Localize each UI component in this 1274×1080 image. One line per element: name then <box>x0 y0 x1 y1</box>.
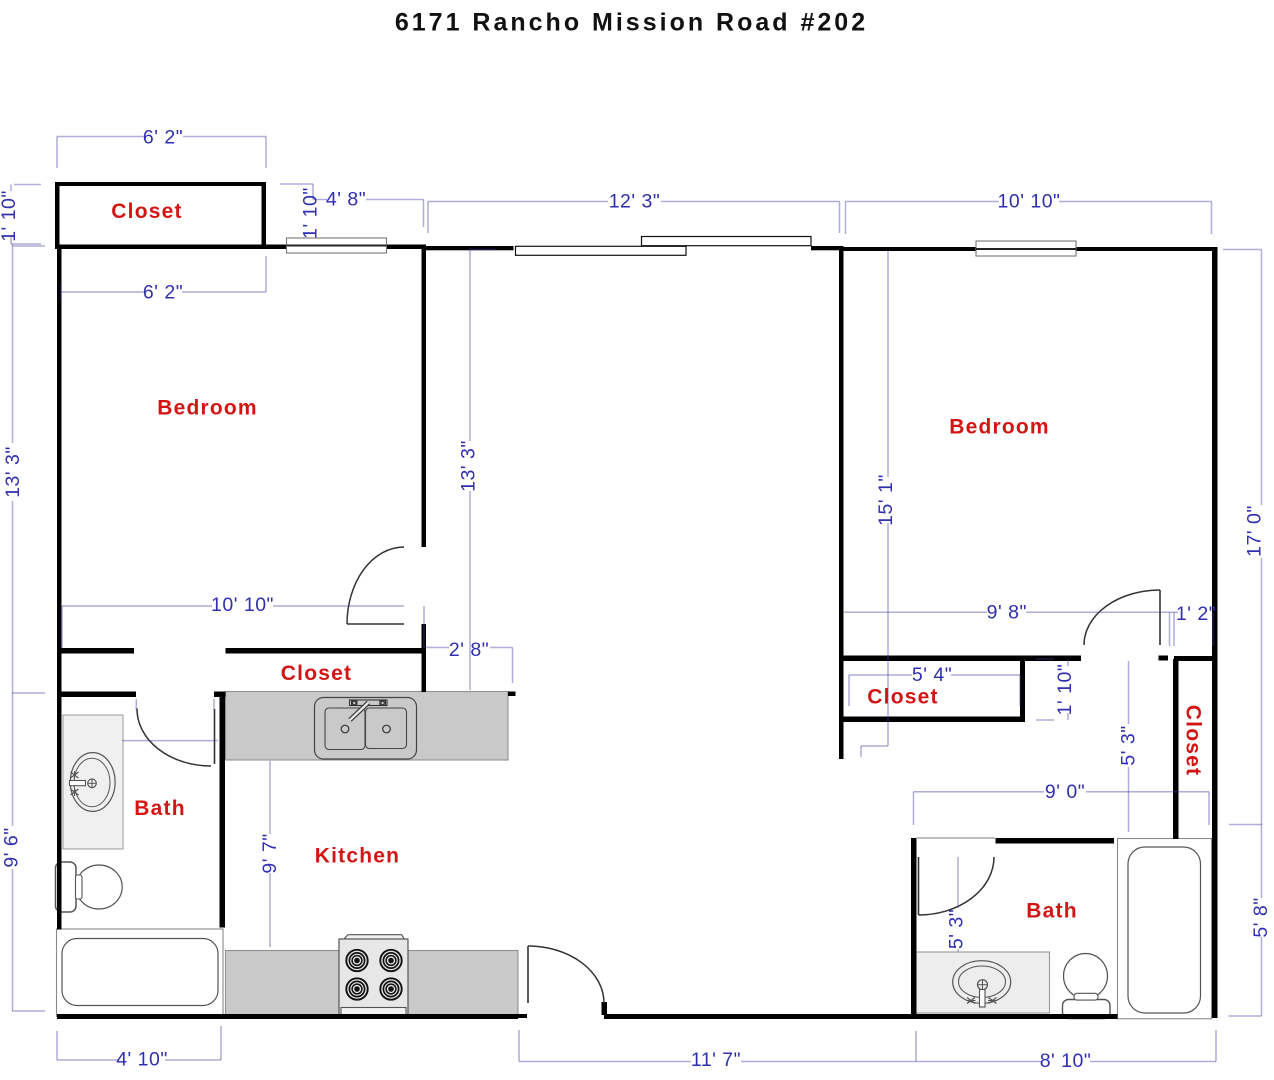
svg-text:Bedroom: Bedroom <box>949 416 1050 439</box>
svg-text:4' 8": 4' 8" <box>326 189 366 211</box>
svg-text:5' 4": 5' 4" <box>912 664 952 686</box>
svg-text:9' 8": 9' 8" <box>987 601 1027 623</box>
svg-text:5' 8": 5' 8" <box>1250 897 1272 937</box>
svg-text:13' 3": 13' 3" <box>458 440 480 492</box>
svg-text:Bedroom: Bedroom <box>157 397 258 420</box>
svg-text:Bath: Bath <box>1026 900 1077 923</box>
svg-text:6171 Rancho Mission Road #202: 6171 Rancho Mission Road #202 <box>395 9 868 37</box>
svg-text:10' 10": 10' 10" <box>998 191 1061 213</box>
svg-text:Closet: Closet <box>1182 705 1205 776</box>
svg-text:5' 3": 5' 3" <box>1118 725 1140 765</box>
svg-text:8' 10": 8' 10" <box>1040 1050 1092 1072</box>
svg-text:1' 2": 1' 2" <box>1176 603 1216 625</box>
svg-text:1' 10": 1' 10" <box>300 187 322 239</box>
svg-text:Closet: Closet <box>281 662 352 685</box>
svg-text:Bath: Bath <box>134 797 185 820</box>
svg-text:11' 7": 11' 7" <box>691 1049 741 1071</box>
svg-text:12' 3": 12' 3" <box>609 191 661 213</box>
svg-text:9' 0": 9' 0" <box>1045 781 1085 803</box>
svg-text:Closet: Closet <box>111 200 182 223</box>
svg-text:Kitchen: Kitchen <box>315 845 400 868</box>
svg-text:4' 10": 4' 10" <box>116 1049 168 1071</box>
svg-text:Closet: Closet <box>867 685 938 708</box>
svg-text:9' 6": 9' 6" <box>1 827 23 867</box>
svg-text:6' 2": 6' 2" <box>143 127 183 149</box>
svg-text:9' 7": 9' 7" <box>259 833 281 873</box>
svg-text:2' 8": 2' 8" <box>449 639 489 661</box>
svg-text:10' 10": 10' 10" <box>211 594 274 616</box>
svg-text:5' 3": 5' 3" <box>946 909 968 949</box>
svg-text:17' 0": 17' 0" <box>1244 505 1266 557</box>
svg-text:15' 1": 15' 1" <box>875 474 897 526</box>
svg-text:1' 10": 1' 10" <box>0 190 20 242</box>
svg-text:13' 3": 13' 3" <box>2 446 24 498</box>
svg-text:1' 10": 1' 10" <box>1054 664 1076 716</box>
svg-text:6' 2": 6' 2" <box>143 282 183 304</box>
